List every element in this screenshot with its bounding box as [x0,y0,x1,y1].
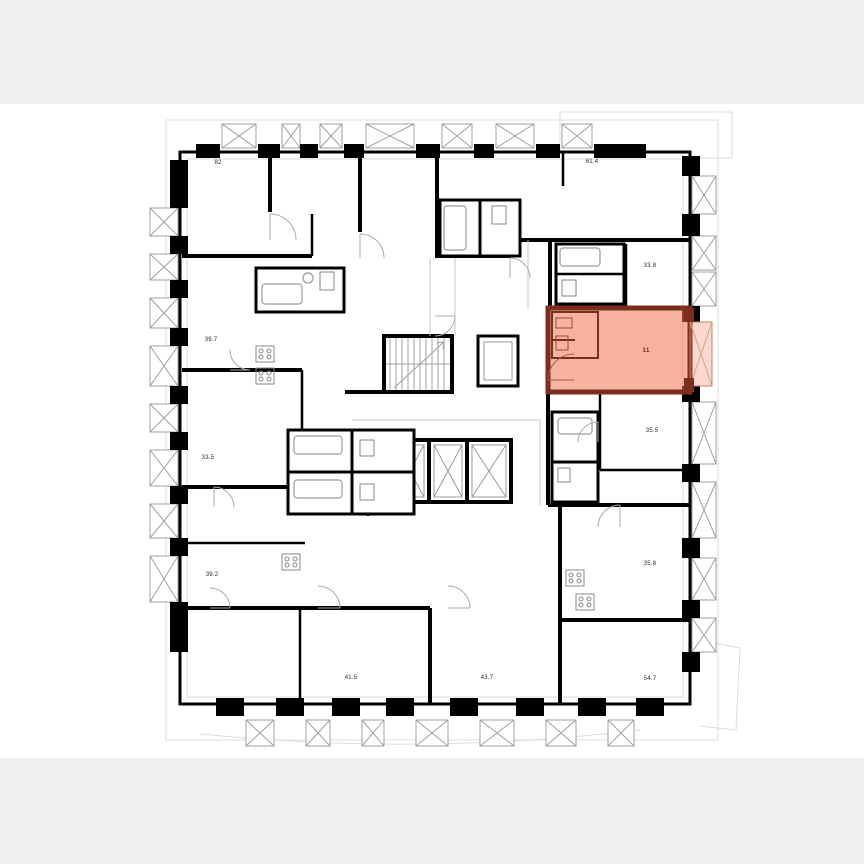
selected-apartment[interactable] [548,308,712,392]
selected-apartment-area[interactable] [548,308,690,392]
floorplan-drawing [0,0,864,864]
stairwell [384,336,452,392]
